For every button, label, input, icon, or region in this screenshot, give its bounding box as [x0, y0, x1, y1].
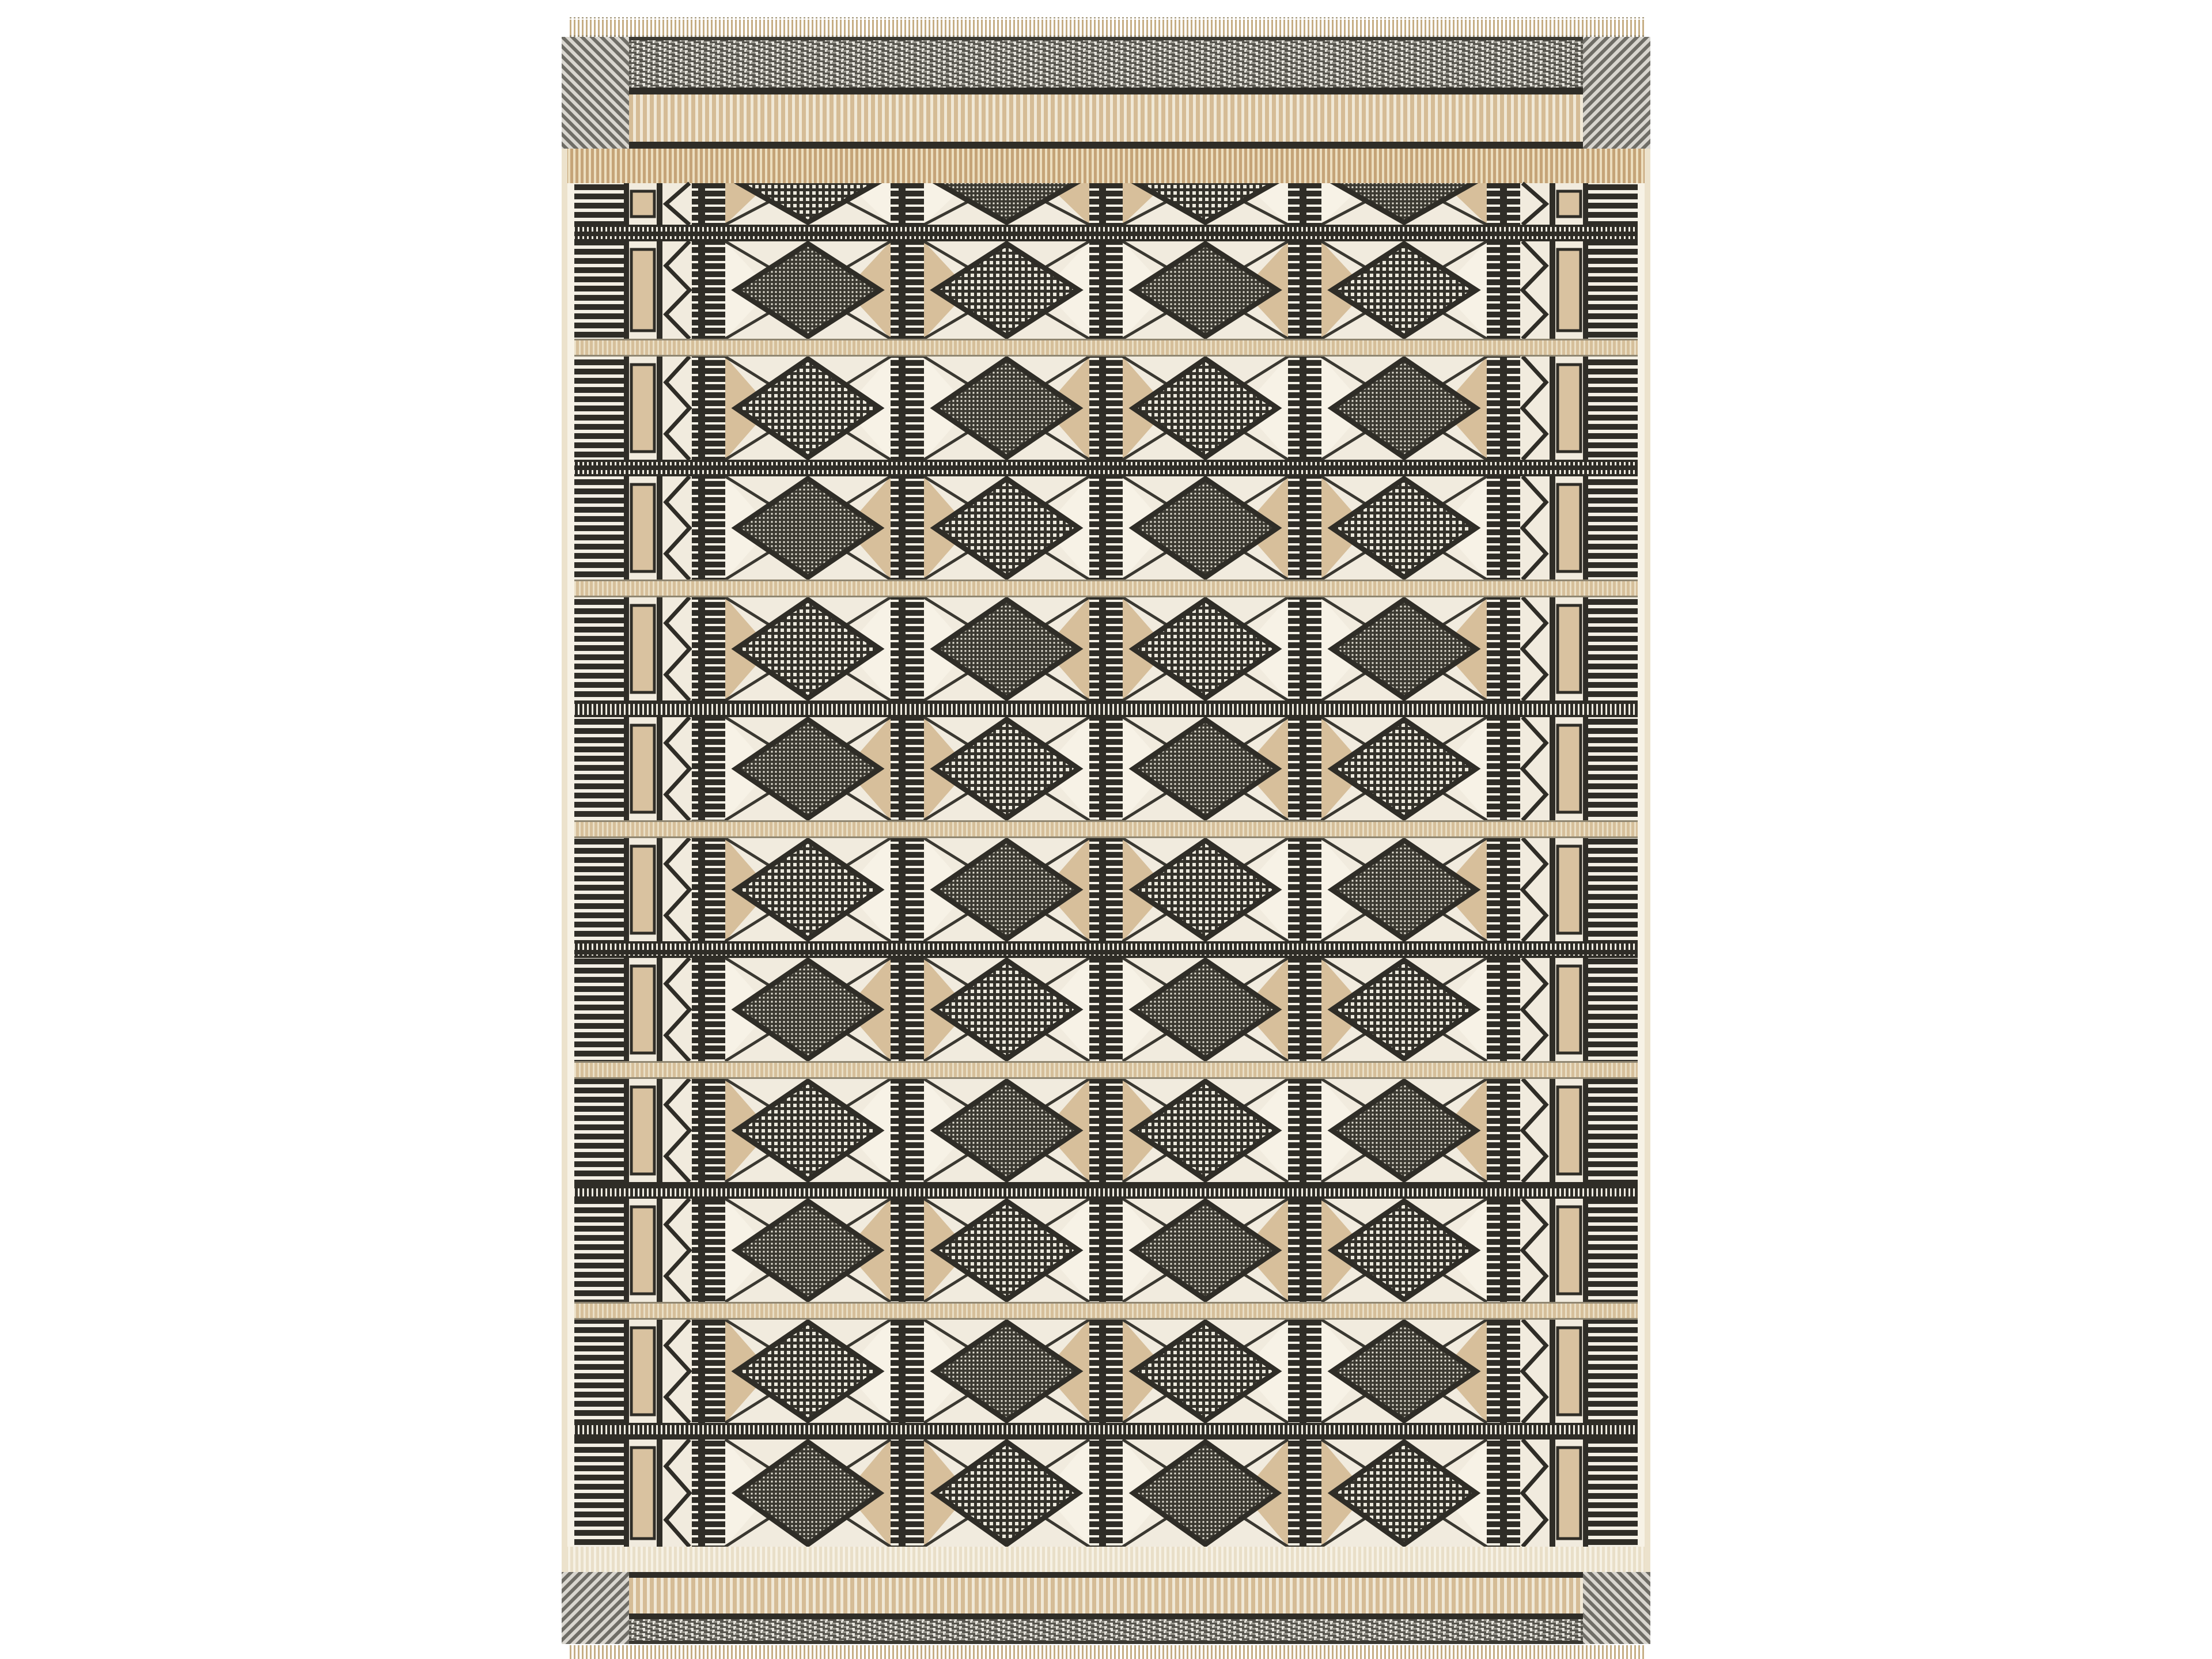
- fringe-bottom: [567, 1644, 1645, 1659]
- product-photo-backdrop: [0, 0, 2212, 1659]
- bottom-border: [562, 1547, 1650, 1644]
- field: [567, 138, 1645, 1547]
- rug-illustration: [0, 0, 2212, 1659]
- fringe-top: [567, 17, 1645, 37]
- top-border: [562, 37, 1650, 183]
- rug: [562, 17, 1650, 1659]
